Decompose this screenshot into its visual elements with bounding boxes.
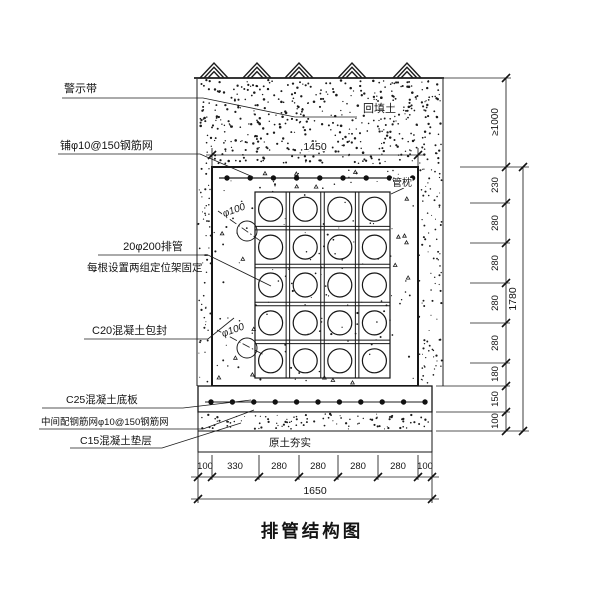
dim-value: 150 — [490, 391, 501, 407]
drawing-title: 排管结构图 — [261, 521, 364, 541]
slab-mesh-label: 中间配钢筋网φ10@150钢筋网 — [41, 416, 169, 428]
drawing-sheet: φ100 φ100 管枕 回填土 原土夯实 1450 警示带 铺φ10@150钢… — [0, 0, 600, 600]
dim-value: 280 — [350, 461, 366, 472]
ground-hatch-symbols — [200, 63, 421, 78]
warning-tape-leader — [62, 98, 357, 117]
pipes-note-label: 每根设置两组定位架固定 — [87, 261, 203, 274]
dim-value: 100 — [417, 461, 433, 472]
dim-value: 280 — [271, 461, 287, 472]
pipe-pillow-label: 管枕 — [392, 176, 412, 189]
encasement-label: C20混凝土包封 — [92, 323, 167, 337]
dim-value: 100 — [197, 461, 213, 472]
dim-value: 280 — [490, 215, 501, 231]
dim-right-total: 1780 — [507, 287, 519, 311]
dim-value: 280 — [490, 255, 501, 271]
cushion-label: C15混凝土垫层 — [80, 434, 152, 447]
dim-value: 330 — [227, 461, 243, 472]
dim-cover-depth: ≥1000 — [490, 108, 501, 136]
dim-top-width: 1450 — [303, 141, 327, 153]
diagram-canvas: φ100 φ100 管枕 回填土 原土夯实 1450 警示带 铺φ10@150钢… — [0, 0, 600, 600]
dim-bottom-total: 1650 — [303, 485, 327, 497]
dim-value: 280 — [310, 461, 326, 472]
dim-value: 100 — [490, 413, 501, 429]
right-segment-values: 230 280 280 280 280 180 150 100 — [490, 177, 501, 429]
dim-value: 280 — [490, 335, 501, 351]
top-mesh-label: 铺φ10@150钢筋网 — [60, 138, 153, 152]
dim-value: 280 — [390, 461, 406, 472]
pipes-label: 20φ200排管 — [123, 239, 183, 253]
dim-value: 180 — [490, 366, 501, 382]
dim-value: 280 — [490, 295, 501, 311]
backfill-label: 回填土 — [363, 101, 396, 115]
base-slab-label: C25混凝土底板 — [66, 393, 138, 406]
compacted-soil-band — [198, 431, 432, 452]
compacted-soil-label: 原土夯实 — [269, 436, 311, 449]
bottom-segment-values: 100 330 280 280 280 280 100 — [197, 461, 433, 472]
dim-value: 230 — [490, 177, 501, 193]
warning-tape-label: 警示带 — [64, 81, 97, 95]
base-slab — [198, 386, 432, 412]
